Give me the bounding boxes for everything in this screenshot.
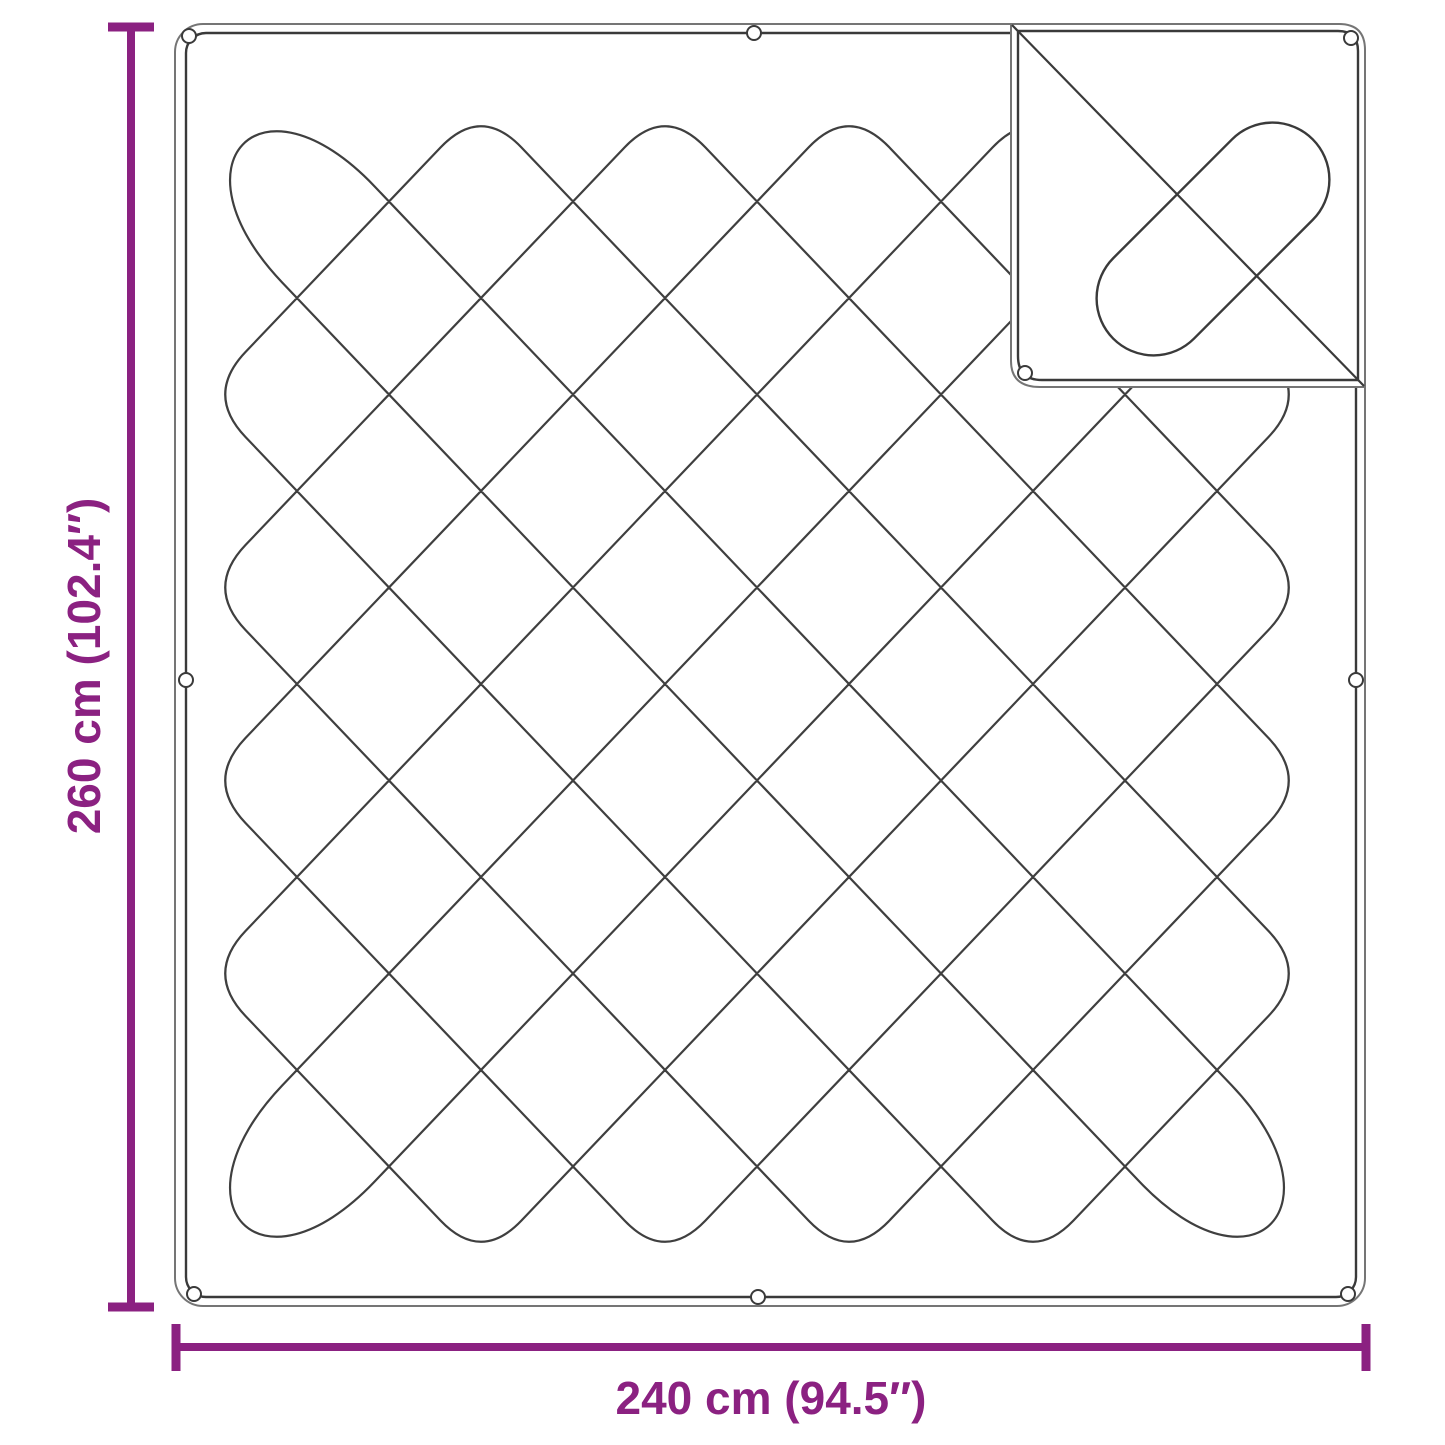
- vertical-dimension-label: 260 cm (102.4″): [58, 498, 110, 835]
- diagram-canvas: 260 cm (102.4″) 240 cm (94.5″): [0, 0, 1445, 1445]
- vertical-dimension: 260 cm (102.4″): [58, 27, 154, 1307]
- flap-corner-button-top-right: [1344, 31, 1358, 45]
- flap-corner-button-bottom-left: [1018, 366, 1032, 380]
- edge-button-left-middle: [179, 673, 193, 687]
- folded-corner-flap: [1011, 24, 1365, 387]
- horizontal-dimension-label: 240 cm (94.5″): [616, 1372, 927, 1424]
- edge-button-right-middle: [1349, 673, 1363, 687]
- edge-button-top-middle: [747, 26, 761, 40]
- edge-button-bottom-middle: [751, 1290, 765, 1304]
- corner-button-bottom-right: [1341, 1287, 1355, 1301]
- product-diagram: 260 cm (102.4″) 240 cm (94.5″): [0, 0, 1445, 1445]
- horizontal-dimension: 240 cm (94.5″): [176, 1324, 1366, 1424]
- corner-button-top-left: [182, 29, 196, 43]
- corner-button-bottom-left: [187, 1287, 201, 1301]
